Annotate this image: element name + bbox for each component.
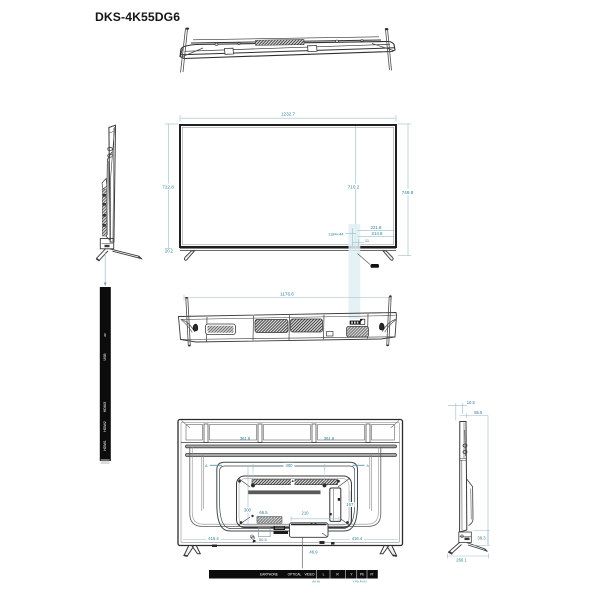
svg-text:L: L xyxy=(323,573,325,577)
svg-text:167: 167 xyxy=(346,502,354,507)
svg-text:AV IN: AV IN xyxy=(312,580,320,584)
svg-text:1184+44: 1184+44 xyxy=(328,231,344,236)
svg-text:214.8: 214.8 xyxy=(372,231,384,236)
svg-text:361.8: 361.8 xyxy=(240,436,251,441)
svg-text:HDMI2: HDMI2 xyxy=(103,421,107,432)
svg-text:416.4: 416.4 xyxy=(352,536,363,541)
svg-text:710.2: 710.2 xyxy=(348,184,360,189)
svg-text:20.2: 20.2 xyxy=(165,248,174,253)
svg-text:1232.7: 1232.7 xyxy=(281,112,295,117)
svg-text:361.8: 361.8 xyxy=(324,436,335,441)
svg-text:712.8: 712.8 xyxy=(162,184,174,189)
svg-text:OPTICAL: OPTICAL xyxy=(288,573,302,577)
svg-text:50.5: 50.5 xyxy=(259,537,268,542)
svg-text:66.5: 66.5 xyxy=(259,510,268,515)
svg-text:46.9: 46.9 xyxy=(309,549,318,554)
svg-text:HDMI1: HDMI1 xyxy=(103,440,107,451)
svg-text:A: A xyxy=(205,464,208,468)
svg-text:400: 400 xyxy=(286,463,294,468)
svg-text:260.1: 260.1 xyxy=(456,558,467,563)
svg-text:HDMI3: HDMI3 xyxy=(103,402,107,413)
svg-text:38.3: 38.3 xyxy=(477,536,486,541)
svg-text:748.8: 748.8 xyxy=(402,190,414,195)
svg-text:Y Pb Pr IN: Y Pb Pr IN xyxy=(352,580,366,584)
svg-text:210: 210 xyxy=(302,511,310,516)
svg-text:DKS-4K55DG6: DKS-4K55DG6 xyxy=(95,10,180,24)
svg-text:416.4: 416.4 xyxy=(208,536,219,541)
svg-text:Pb: Pb xyxy=(360,573,364,577)
svg-text:AV: AV xyxy=(103,333,107,337)
svg-text:10.5: 10.5 xyxy=(467,400,476,405)
svg-text:VIDEO: VIDEO xyxy=(305,573,315,577)
svg-text:221.8: 221.8 xyxy=(371,225,383,230)
svg-text:USB: USB xyxy=(103,353,107,361)
svg-text:A: A xyxy=(367,464,370,468)
svg-text:EARPHONE: EARPHONE xyxy=(260,573,278,577)
svg-text:1176.6: 1176.6 xyxy=(280,292,294,297)
svg-text:300: 300 xyxy=(244,508,252,513)
svg-text:55.5: 55.5 xyxy=(474,410,483,415)
